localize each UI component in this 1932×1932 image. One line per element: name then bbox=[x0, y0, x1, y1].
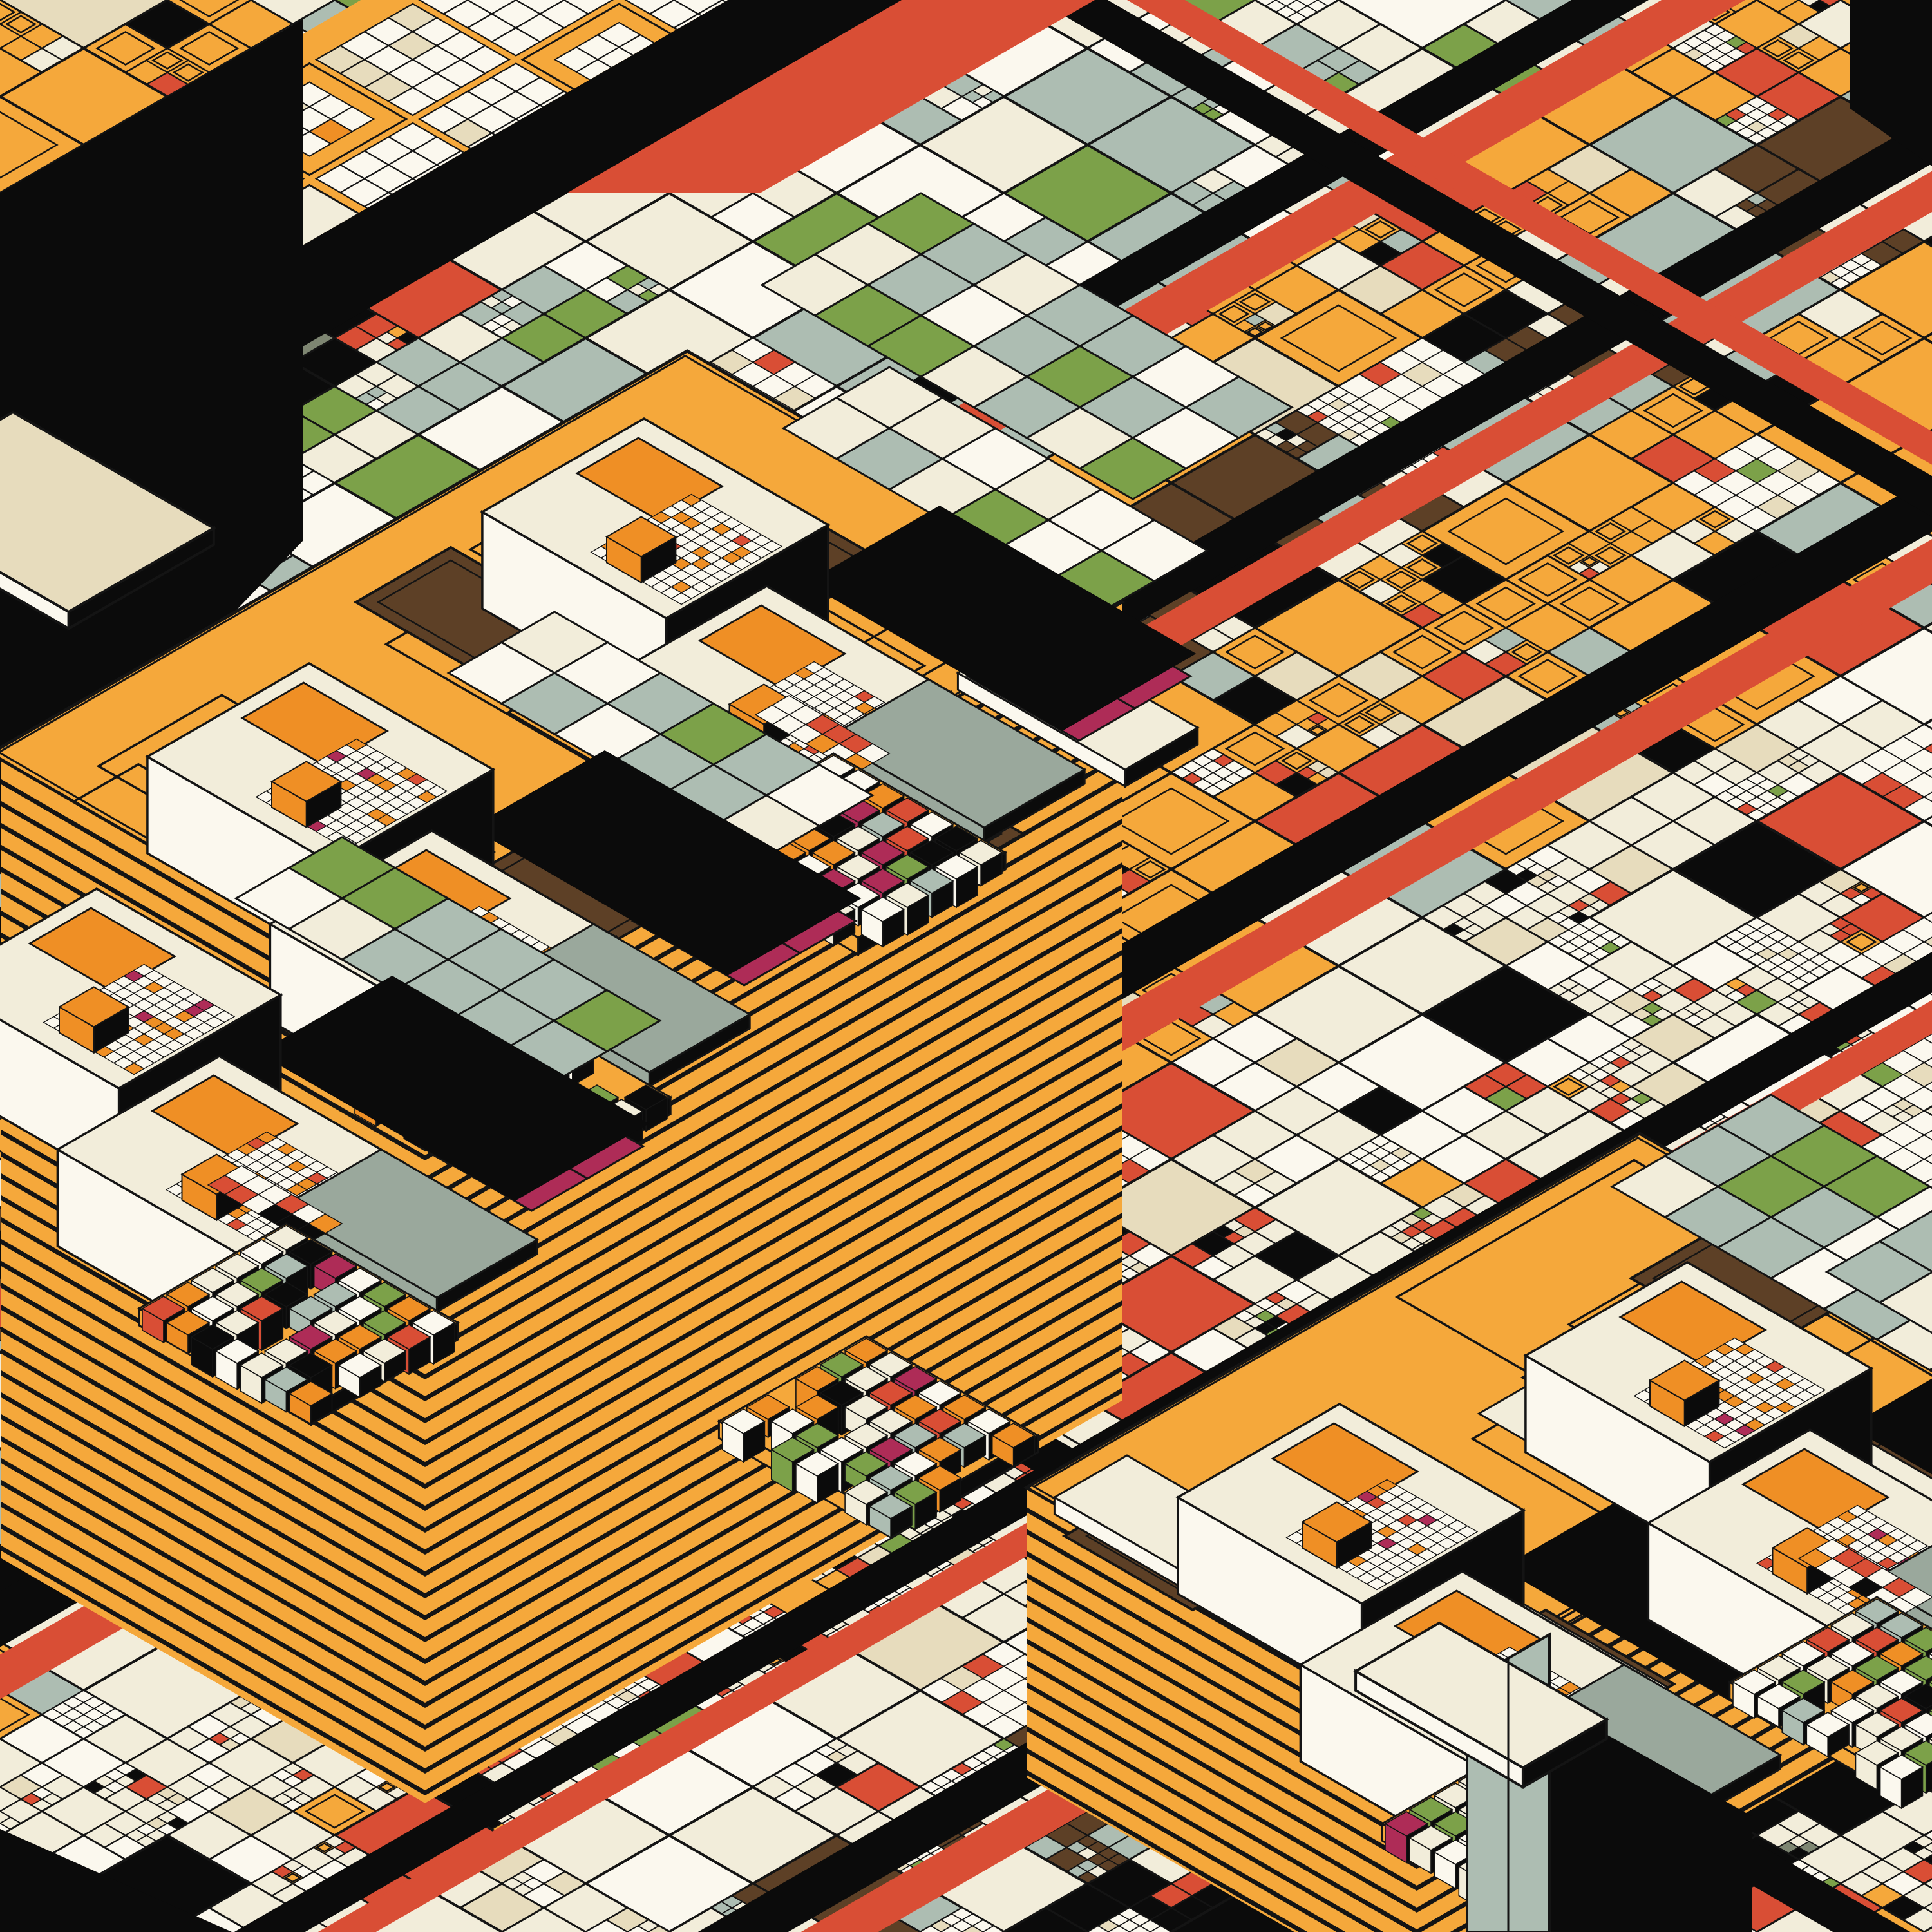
artwork-stage bbox=[0, 0, 1932, 1932]
generative-isometric-artwork bbox=[0, 0, 1932, 1932]
